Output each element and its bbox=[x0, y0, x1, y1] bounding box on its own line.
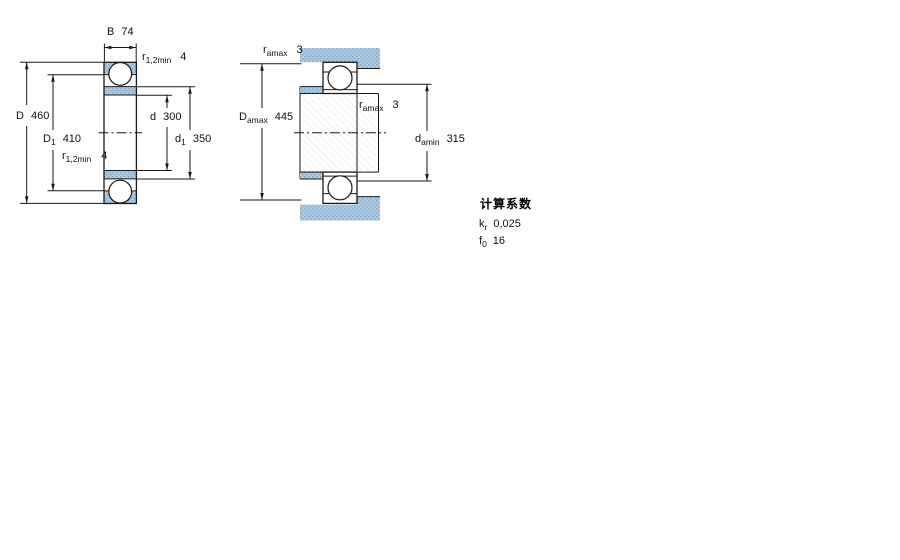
right-bearing-top bbox=[323, 62, 357, 93]
dim-D-label: D460 bbox=[14, 110, 51, 123]
right-bearing-bottom bbox=[323, 172, 357, 203]
dim-B-label: B74 bbox=[107, 26, 134, 39]
dim-damin-label: damin315 bbox=[413, 133, 467, 146]
dim-d-lines bbox=[137, 95, 172, 170]
factor-f0: f016 bbox=[479, 235, 505, 247]
dim-d-label: d300 bbox=[148, 111, 183, 124]
dim-r12min-bottom-label: r1,2min4 bbox=[62, 150, 107, 163]
technical-drawing-svg bbox=[0, 0, 900, 560]
dim-D1-label: D1410 bbox=[41, 133, 83, 146]
bearing-drawing-canvas: B74 r1,2min4 D460 D1410 r1,2min4 d300 d1… bbox=[0, 0, 900, 560]
dim-r12min-top-label: r1,2min4 bbox=[142, 51, 186, 64]
ball-bottom bbox=[109, 180, 132, 203]
dim-Damax-label: Damax445 bbox=[237, 111, 295, 124]
dim-ramax-mid-label: ramax3 bbox=[359, 99, 399, 112]
factor-kr: kr0,025 bbox=[479, 218, 521, 230]
dim-d1-label: d1350 bbox=[173, 133, 213, 146]
ball-top bbox=[109, 63, 132, 86]
dim-ramax-top-label: ramax3 bbox=[263, 44, 303, 57]
calculation-factors-title: 计算系数 bbox=[480, 195, 532, 212]
right-mounting-diagram bbox=[240, 48, 432, 221]
dim-Damax-lines bbox=[240, 64, 302, 200]
dim-B-lines bbox=[104, 44, 136, 62]
